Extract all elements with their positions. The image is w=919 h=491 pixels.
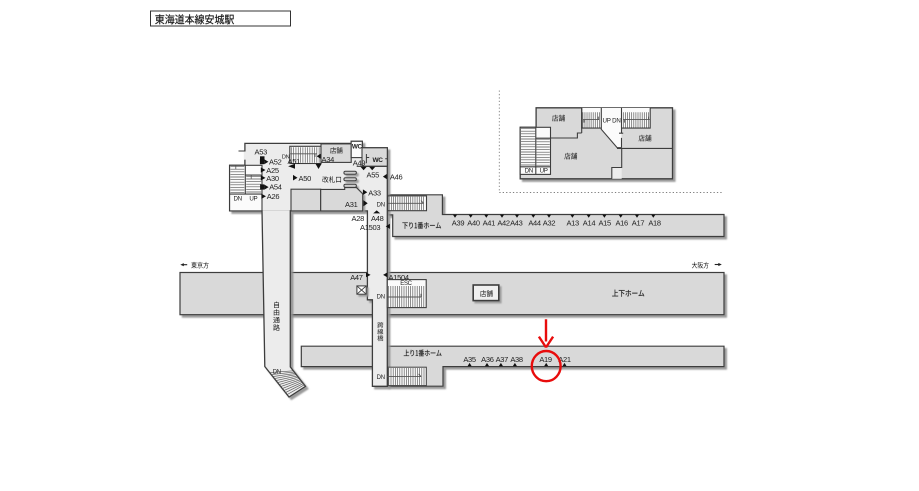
svg-text:UP DN: UP DN [603,117,621,124]
svg-text:A18: A18 [648,219,661,228]
svg-text:A47: A47 [350,273,363,282]
svg-text:WC: WC [372,157,383,164]
svg-text:A33: A33 [368,188,381,197]
svg-text:A39: A39 [452,219,465,228]
svg-text:A49: A49 [353,159,366,168]
svg-text:A1503: A1503 [360,223,380,232]
svg-text:A48: A48 [371,214,384,223]
svg-text:A14: A14 [583,219,596,228]
svg-text:A32: A32 [543,219,556,228]
svg-text:A53: A53 [255,148,268,157]
svg-text:A26: A26 [267,192,280,201]
svg-text:A17: A17 [632,219,645,228]
svg-text:A36: A36 [481,355,494,364]
svg-text:A13: A13 [566,219,579,228]
svg-text:DN: DN [377,202,385,208]
svg-text:DN: DN [377,294,385,300]
svg-text:A43: A43 [510,219,523,228]
svg-text:A50: A50 [299,174,312,183]
svg-text:A28: A28 [352,214,365,223]
svg-text:A15: A15 [598,219,611,228]
svg-text:A41: A41 [483,219,496,228]
svg-text:A38: A38 [510,355,523,364]
svg-text:A34: A34 [322,155,335,164]
svg-text:A37: A37 [496,355,509,364]
svg-text:A31: A31 [345,200,358,209]
svg-text:A55: A55 [367,170,380,179]
svg-text:UP: UP [249,195,257,202]
svg-text:DN: DN [377,375,385,381]
svg-text:DN: DN [234,195,242,202]
svg-text:WC: WC [352,143,363,150]
svg-text:A16: A16 [615,219,628,228]
svg-text:UP: UP [540,168,548,175]
svg-text:A40: A40 [467,219,480,228]
svg-text:DN: DN [273,370,281,376]
svg-text:DN: DN [525,168,533,175]
svg-text:A54: A54 [269,183,282,192]
svg-text:A19: A19 [539,355,552,364]
svg-text:A44: A44 [528,219,541,228]
svg-text:A30: A30 [266,174,279,183]
svg-text:A42: A42 [497,219,510,228]
svg-text:A46: A46 [390,173,403,182]
svg-text:A35: A35 [463,355,476,364]
